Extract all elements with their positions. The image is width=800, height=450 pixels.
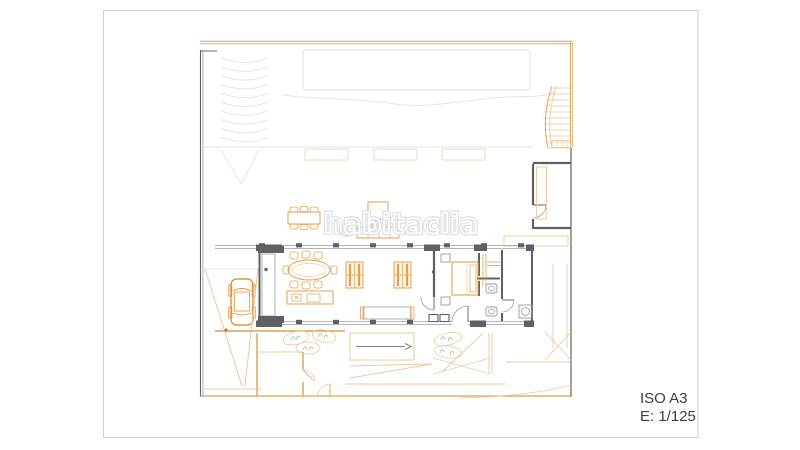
sheet-format-label: ISO A3	[640, 390, 688, 407]
screenshot: habitaclia habitaclia ISO A3 E: 1/125	[0, 0, 800, 450]
sheet-annotation: ISO A3 E: 1/125	[640, 390, 696, 425]
floor-plan-drawing: habitaclia habitaclia ISO A3 E: 1/125	[0, 0, 800, 450]
sheet-scale-label: E: 1/125	[640, 408, 696, 425]
watermark: habitaclia habitaclia	[324, 209, 479, 240]
